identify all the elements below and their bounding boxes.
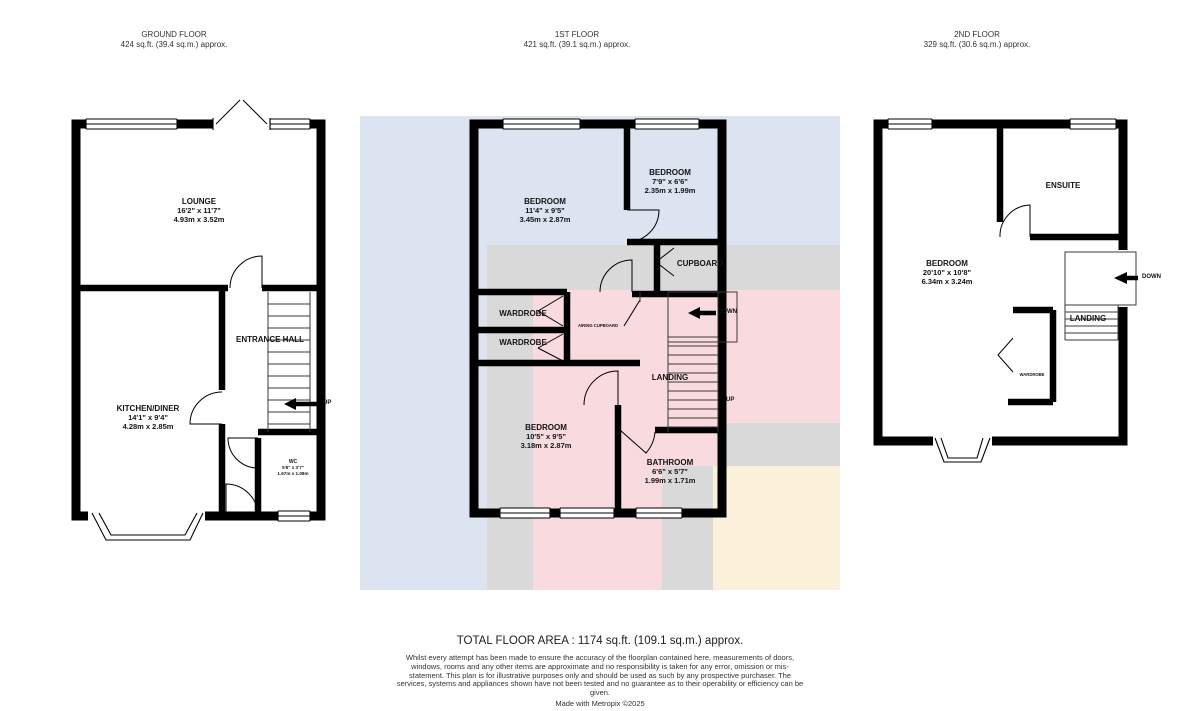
room-label-bedroom-3: BEDROOM 10'5" x 9'5" 3.18m x 2.87m — [486, 423, 606, 450]
disclaimer-text: Whilst every attempt has been made to en… — [394, 654, 806, 698]
room-label-bathroom: BATHROOM 6'6" x 5'7" 1.99m x 1.71m — [610, 458, 730, 485]
room-label-landing-2nd: LANDING — [1050, 314, 1126, 323]
down-arrow-head-icon — [688, 307, 700, 319]
first-floor-title: 1ST FLOOR — [477, 30, 677, 40]
room-label-kitchen-diner: KITCHEN/DINER 14'1" x 9'4" 4.28m x 2.85m — [88, 404, 208, 431]
ground-up-label: UP — [323, 400, 331, 406]
total-floor-area: TOTAL FLOOR AREA : 1174 sq.ft. (109.1 sq… — [457, 635, 744, 647]
room-label-lounge: LOUNGE 16'2" x 11'7" 4.93m x 3.52m — [139, 197, 259, 224]
second-floor-title: 2ND FLOOR — [877, 30, 1077, 40]
room-label-airing-cupboard: AIRING CUPBOARD — [569, 323, 627, 328]
room-label-landing-1st: LANDING — [638, 373, 702, 382]
room-label-wc: WC 5'6" x 3'7" 1.67m x 1.08m — [257, 459, 329, 477]
ground-doors — [190, 256, 262, 516]
room-label-bedroom-2: BEDROOM 7'9" x 6'6" 2.35m x 1.99m — [610, 168, 730, 195]
floorplan-page: GROUND FLOOR 424 sq.ft. (39.4 sq.m.) app… — [0, 0, 1200, 711]
room-label-wardrobe-2: WARDROBE — [487, 338, 559, 347]
second-doors — [998, 205, 1030, 372]
second-down-label: DOWN — [1142, 274, 1161, 280]
second-floor-area: 329 sq.ft. (30.6 sq.m.) approx. — [877, 40, 1077, 50]
room-label-bedroom-2nd: BEDROOM 20'10" x 10'8" 6.34m x 3.24m — [897, 259, 997, 286]
ground-floor-area: 424 sq.ft. (39.4 sq.m.) approx. — [74, 40, 274, 50]
first-floor-area: 421 sq.ft. (39.1 sq.m.) approx. — [477, 40, 677, 50]
first-up-label: UP — [726, 397, 734, 403]
second-floor-header: 2ND FLOOR 329 sq.ft. (30.6 sq.m.) approx… — [877, 30, 1077, 49]
ground-floor-plan — [60, 90, 350, 560]
first-down-label: DOWN — [718, 309, 737, 315]
ground-stairs — [268, 292, 320, 432]
room-label-bedroom-1: BEDROOM 11'4" x 9'5" 3.45m x 2.87m — [485, 197, 605, 224]
credit-line: Made with Metropix ©2025 — [555, 699, 644, 708]
room-label-ensuite: ENSUITE — [1013, 181, 1113, 190]
first-floor-header: 1ST FLOOR 421 sq.ft. (39.1 sq.m.) approx… — [477, 30, 677, 49]
room-label-wardrobe-2nd: WARDROBE — [1010, 372, 1054, 377]
room-label-wardrobe-1: WARDROBE — [487, 309, 559, 318]
wardrobe-door-leaves — [998, 338, 1013, 372]
ground-walls — [76, 124, 321, 516]
room-label-cupboard: CUPBOARD — [664, 259, 736, 268]
ground-floor-header: GROUND FLOOR 424 sq.ft. (39.4 sq.m.) app… — [74, 30, 274, 49]
room-label-entrance-hall: ENTRANCE HALL — [212, 335, 328, 344]
ground-floor-title: GROUND FLOOR — [74, 30, 274, 40]
